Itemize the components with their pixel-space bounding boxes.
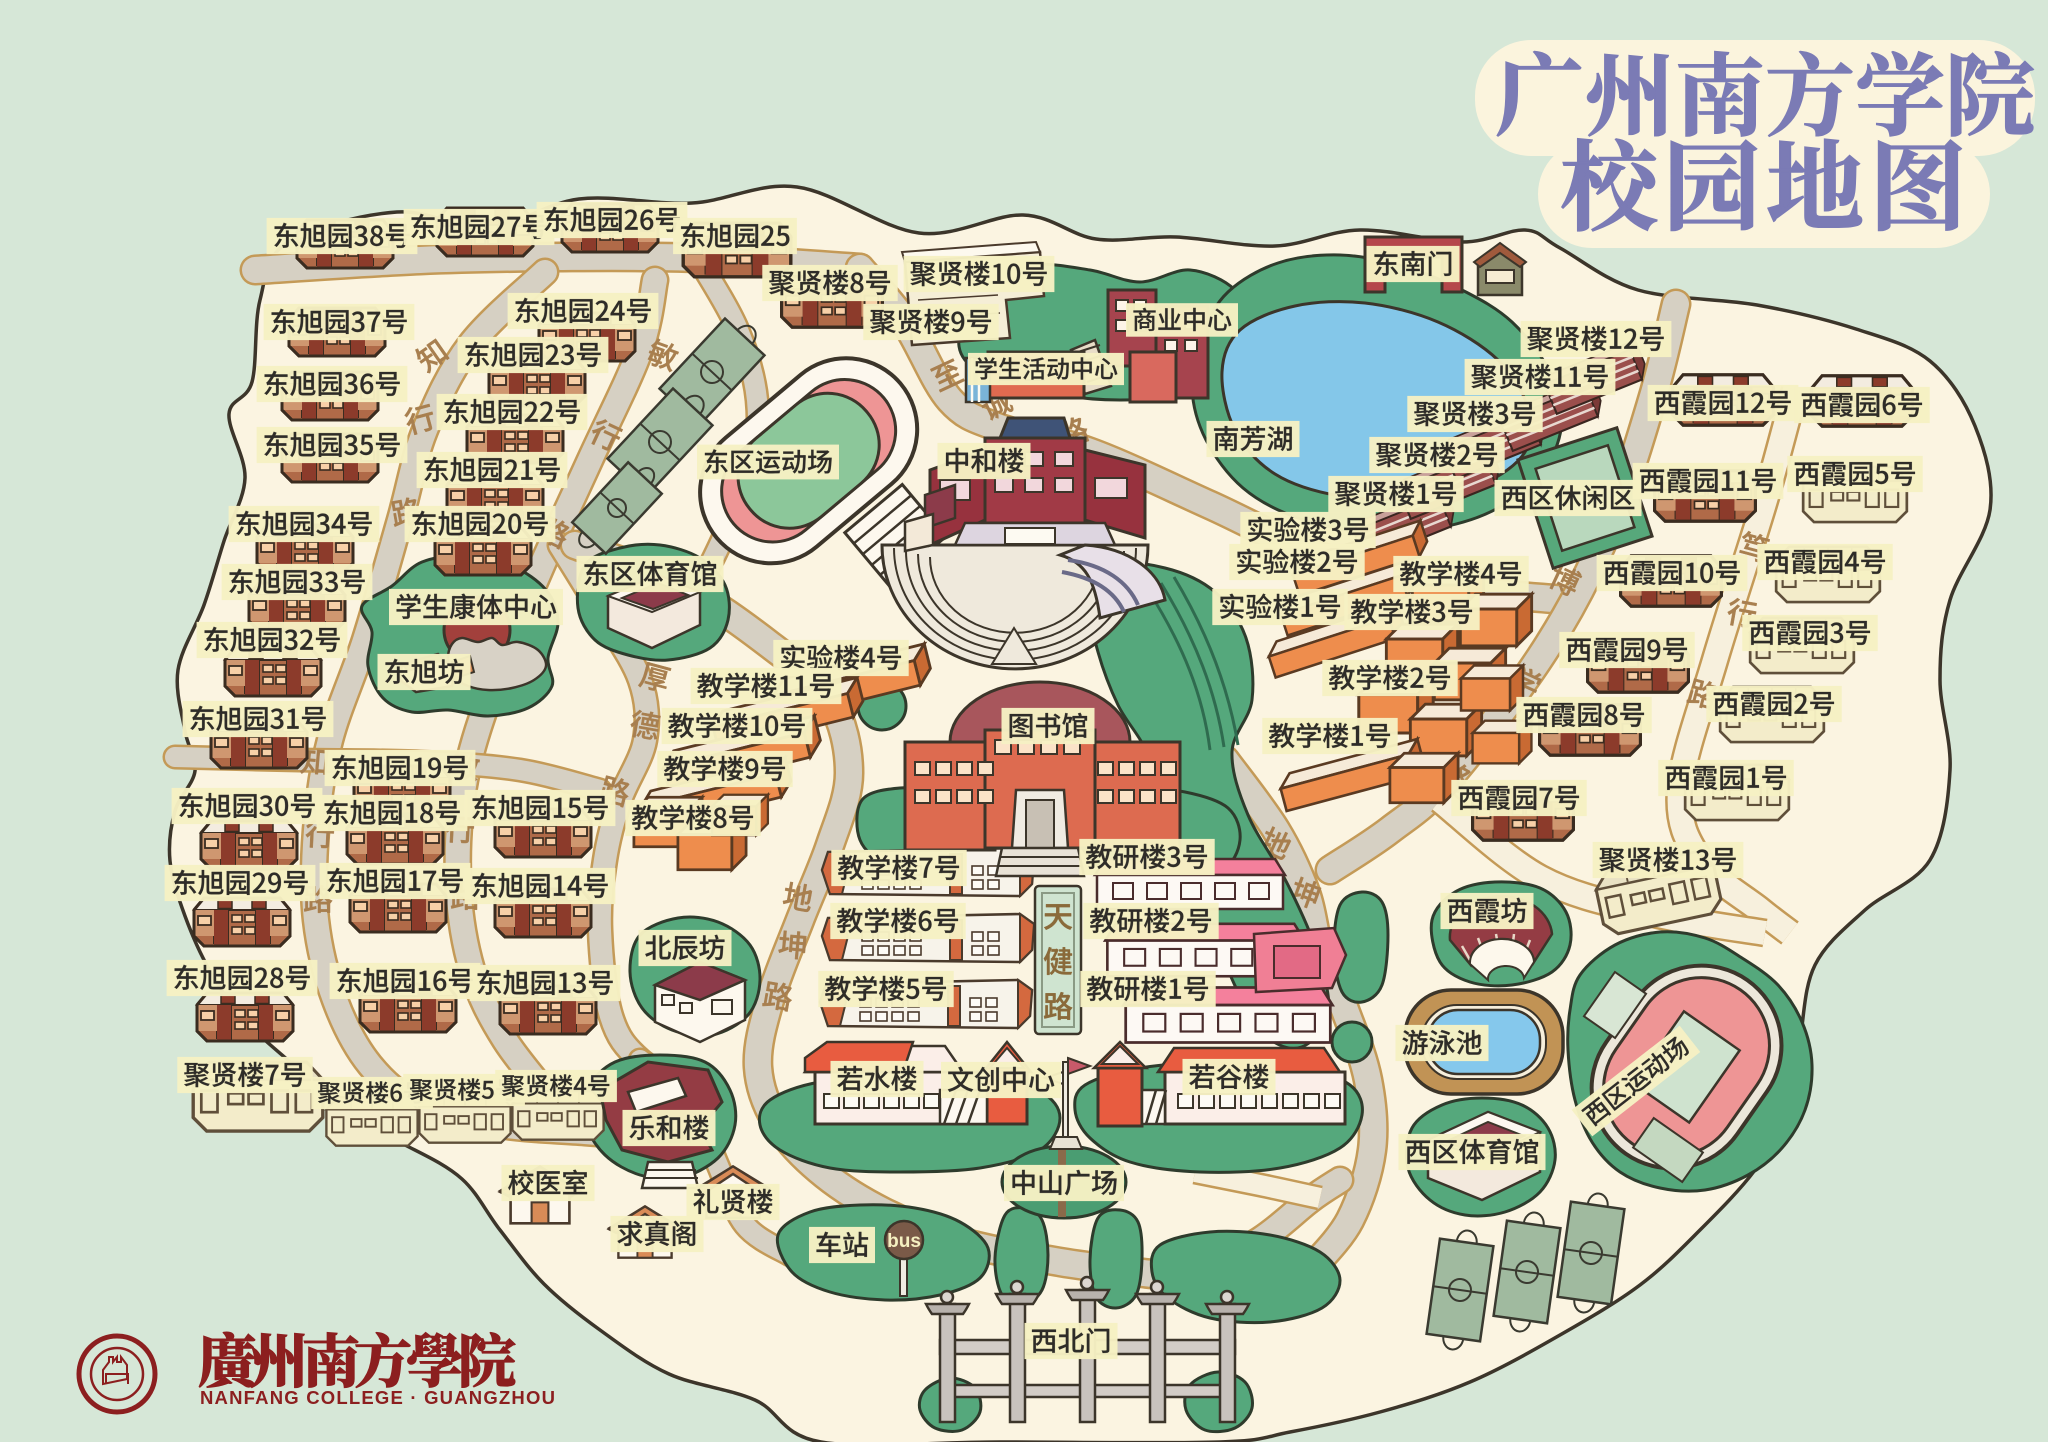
svg-text:bus: bus [887, 1231, 921, 1252]
svg-text:NANFANG COLLEGE · GUANGZHOU: NANFANG COLLEGE · GUANGZHOU [200, 1387, 556, 1408]
